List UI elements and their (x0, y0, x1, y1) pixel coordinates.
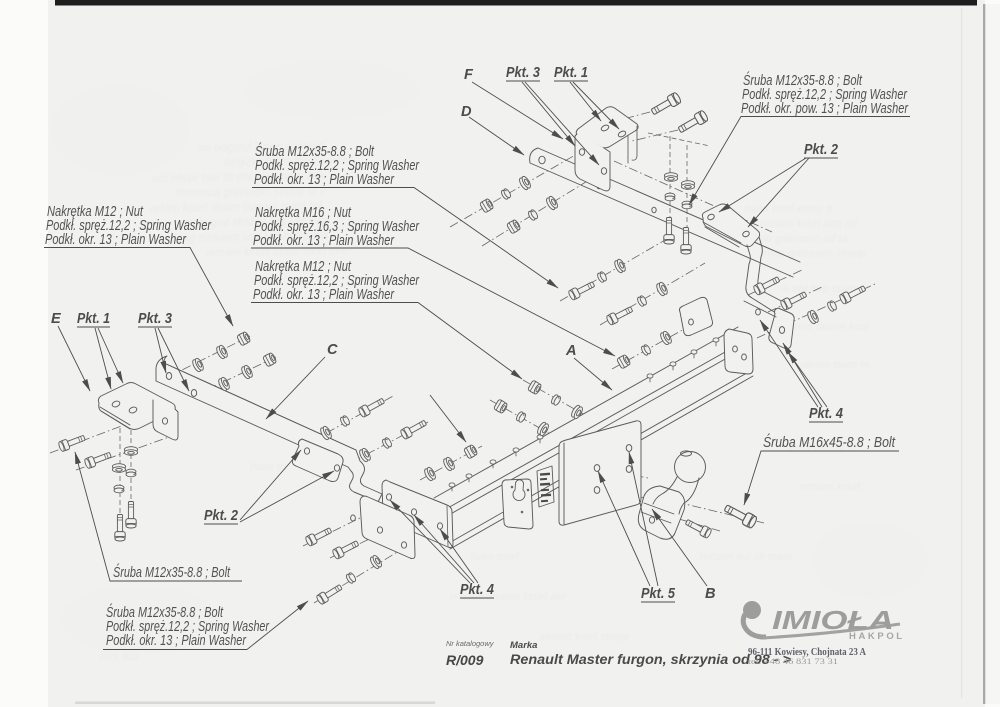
svg-text:Podkł. okr. pow. 13 ; Plain Wa: Podkł. okr. pow. 13 ; Plain Washer (741, 101, 909, 117)
svg-text:C: C (327, 342, 338, 358)
svg-text:etalp gnitnuom od ta: etalp gnitnuom od ta (748, 233, 848, 245)
svg-text:tsam tn: tsam tn (250, 461, 286, 473)
svg-text:akram tsam tn: akram tsam tn (800, 359, 870, 371)
svg-text:E: E (51, 311, 62, 327)
svg-text:retsam tlui ak tsam: retsam tlui ak tsam (700, 551, 792, 563)
svg-text:Pkt. 5: Pkt. 5 (641, 586, 676, 602)
svg-text:Pkt. 2: Pkt. 2 (804, 142, 838, 158)
svg-text:rets tlua: rets tlua (100, 651, 139, 663)
svg-text:Śruba M12x35-8.8 ; Bolt: Śruba M12x35-8.8 ; Bolt (113, 563, 231, 581)
svg-text:F: F (464, 67, 474, 83)
svg-text:mec gnitnuom stniop: mec gnitnuom stniop (764, 248, 866, 260)
svg-text:Pkt. 3: Pkt. 3 (506, 65, 540, 81)
svg-text:Pkt. 2: Pkt. 2 (204, 508, 238, 524)
svg-text:Podkł. okr. 13 ; Plain Washer: Podkł. okr. 13 ; Plain Washer (106, 633, 247, 649)
svg-text:retsam kcurt: retsam kcurt (800, 481, 861, 493)
svg-text:einezc tnorf stniop: einezc tnorf stniop (540, 631, 629, 643)
svg-text:Śruba M16x45-8.8 ; Bolt: Śruba M16x45-8.8 ; Bolt (763, 433, 896, 451)
svg-text:B: B (705, 586, 716, 602)
svg-text:tsam tnorf einez tr: tsam tnorf einez tr (745, 203, 834, 215)
svg-text:Pkt. 1: Pkt. 1 (554, 65, 588, 81)
svg-text:R/009: R/009 (446, 652, 484, 668)
svg-text:tel. +48 46 831 73 31: tel. +48 46 831 73 31 (748, 656, 838, 666)
svg-text:Pkt. 3: Pkt. 3 (138, 311, 172, 327)
svg-text:retsam kcurt rets mt: retsam kcurt rets mt (760, 218, 858, 230)
svg-text:Pkt. 4: Pkt. 4 (809, 406, 843, 422)
svg-text:rets tluane kcur: rets tluane kcur (795, 321, 872, 333)
svg-text:Podkł. okr. 13 ; Plain Washer: Podkł. okr. 13 ; Plain Washer (253, 233, 395, 249)
svg-text:Podkł. okr. 13 ; Plain Washer: Podkł. okr. 13 ; Plain Washer (45, 232, 187, 248)
svg-text:D: D (461, 104, 472, 120)
svg-text:Marka: Marka (510, 640, 537, 651)
svg-text:Pkt. 1: Pkt. 1 (77, 311, 110, 327)
svg-text:HAKPOL: HAKPOL (849, 631, 905, 642)
svg-text:Nr katalogowy: Nr katalogowy (446, 639, 495, 648)
svg-text:Podkł. okr. 13 ; Plain Washer: Podkł. okr. 13 ; Plain Washer (253, 287, 395, 303)
svg-text:Podkł. okr. 13 ; Plain Washer: Podkł. okr. 13 ; Plain Washer (254, 172, 395, 188)
svg-text:Pkt. 4: Pkt. 4 (460, 582, 494, 598)
svg-text:A: A (565, 343, 577, 359)
svg-text:tsam tnorf: tsam tnorf (470, 551, 520, 563)
